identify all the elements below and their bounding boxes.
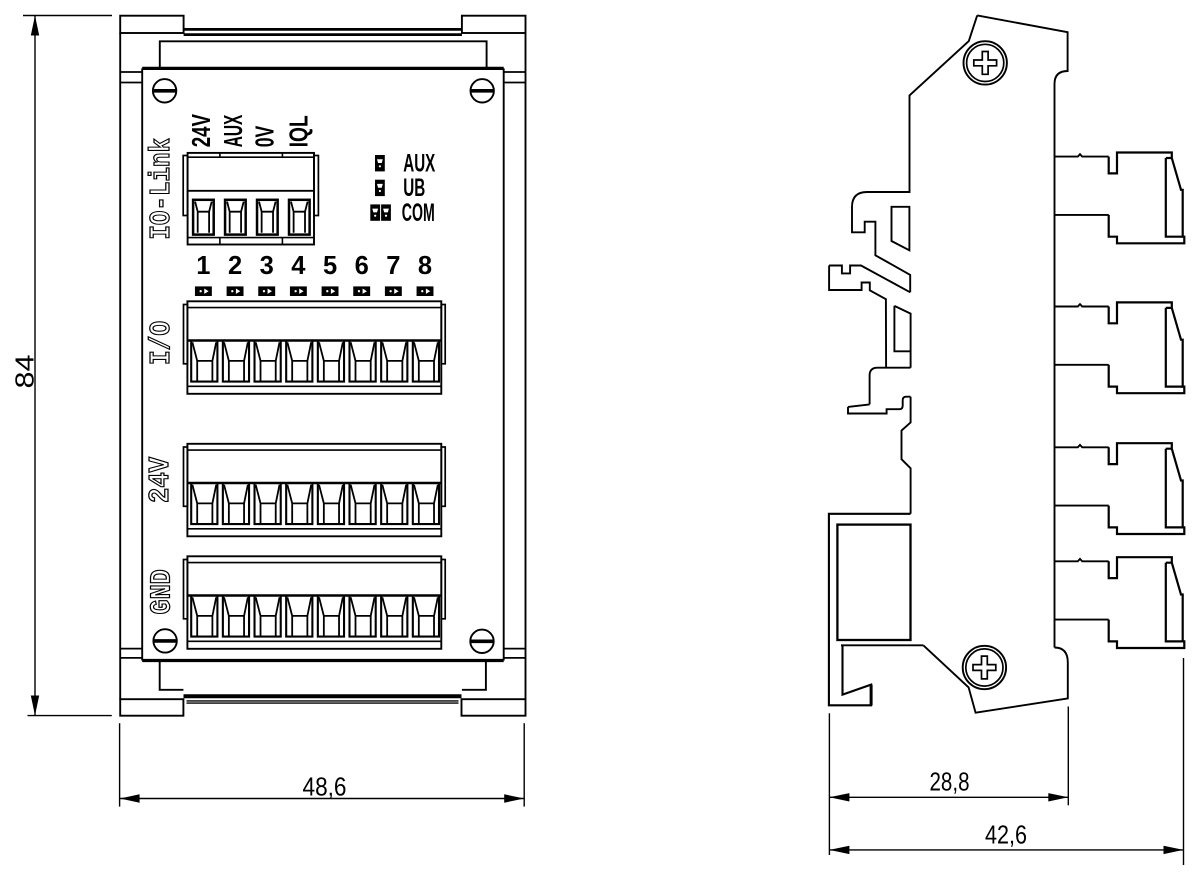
svg-text:2: 2 bbox=[228, 252, 242, 280]
svg-text:84: 84 bbox=[10, 355, 40, 389]
svg-text:24V: 24V bbox=[144, 456, 177, 503]
svg-text:1: 1 bbox=[196, 252, 210, 280]
svg-text:I/O: I/O bbox=[145, 321, 178, 365]
svg-text:24V: 24V bbox=[186, 114, 216, 148]
svg-text:5: 5 bbox=[323, 252, 337, 280]
svg-text:6: 6 bbox=[355, 252, 369, 280]
svg-text:UB: UB bbox=[403, 174, 425, 202]
svg-text:0V: 0V bbox=[249, 125, 279, 147]
svg-text:28,8: 28,8 bbox=[930, 767, 970, 797]
svg-text:IO-Link: IO-Link bbox=[145, 138, 178, 240]
svg-text:IQL: IQL bbox=[284, 115, 314, 147]
svg-text:4: 4 bbox=[291, 252, 306, 280]
svg-text:42,6: 42,6 bbox=[985, 820, 1027, 850]
svg-text:3: 3 bbox=[260, 252, 274, 280]
svg-text:GND: GND bbox=[146, 569, 179, 614]
svg-text:8: 8 bbox=[418, 252, 432, 280]
svg-text:AUX: AUX bbox=[218, 114, 248, 147]
svg-text:7: 7 bbox=[386, 252, 400, 280]
svg-text:COM: COM bbox=[402, 199, 435, 227]
svg-text:48,6: 48,6 bbox=[303, 772, 347, 802]
